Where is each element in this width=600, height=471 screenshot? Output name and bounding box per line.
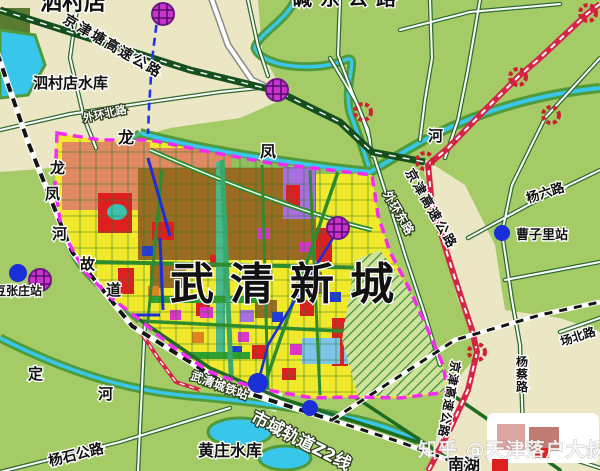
label-sicundian-reservoir: 泗村店水库 bbox=[33, 74, 108, 92]
map-screenshot: 泗村店 京津塘高速公路 泗村店水库 碱东公路 外环北路 龙 凤 龙 凤 河 故 … bbox=[0, 0, 600, 471]
svg-text:龙: 龙 bbox=[49, 159, 65, 177]
svg-text:凤: 凤 bbox=[45, 185, 60, 203]
svg-text:河: 河 bbox=[52, 225, 67, 243]
map-title-wuqing-new-city: 武清新城 bbox=[170, 259, 410, 310]
label-caozili-station: 曹子里站 bbox=[516, 227, 568, 243]
watermark-zhihu: 知乎 @天津落户大叔 bbox=[418, 438, 600, 461]
svg-text:故: 故 bbox=[80, 255, 96, 273]
label-yangcai-road: 杨蔡路 bbox=[515, 354, 529, 394]
label-ding-river-char2: 河 bbox=[98, 385, 113, 403]
label-river-he: 河 bbox=[428, 127, 443, 145]
label-jiandong-road: 碱东公路 bbox=[292, 0, 404, 10]
label-douzhangzhuang-station: 豆张庄站 bbox=[0, 283, 42, 298]
label-huangzhuang-reservoir: 黄庄水库 bbox=[198, 441, 262, 460]
label-longfeng-char2: 凤 bbox=[260, 142, 276, 161]
svg-text:道: 道 bbox=[106, 281, 121, 299]
label-longfeng-char1: 龙 bbox=[117, 128, 134, 147]
label-ding-river-char1: 定 bbox=[28, 365, 43, 383]
planning-map: 泗村店 京津塘高速公路 泗村店水库 碱东公路 外环北路 龙 凤 龙 凤 河 故 … bbox=[0, 0, 600, 471]
